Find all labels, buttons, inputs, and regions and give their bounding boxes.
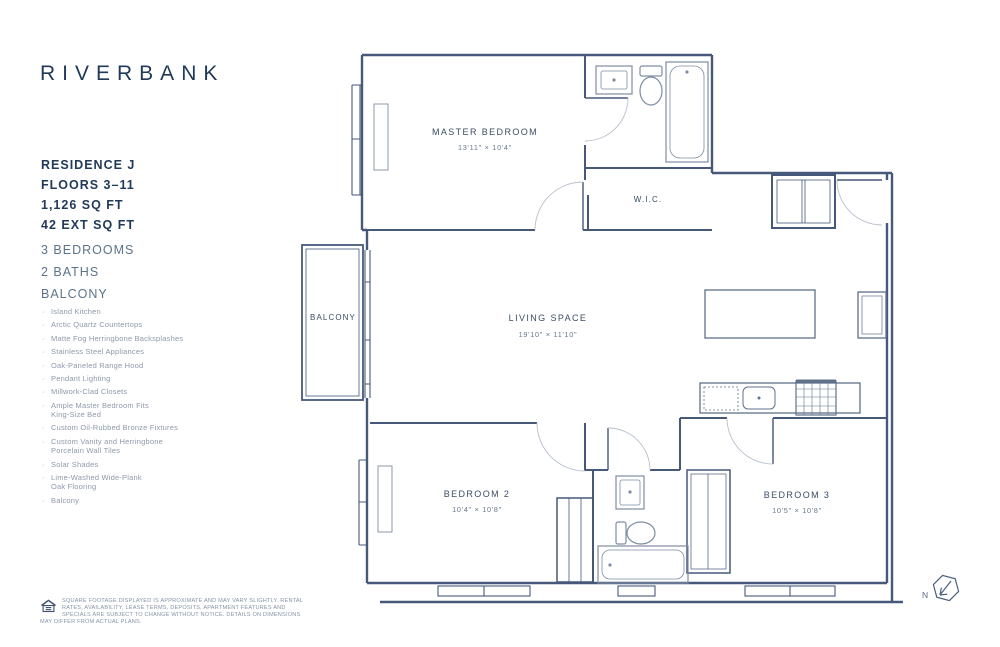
label-master-bedroom: MASTER BEDROOM bbox=[432, 127, 538, 137]
island bbox=[705, 290, 815, 338]
baths-count: 2 BATHS bbox=[41, 261, 134, 283]
furniture bbox=[374, 104, 392, 532]
bathtub bbox=[666, 62, 708, 162]
label-bedroom2: BEDROOM 2 bbox=[444, 489, 511, 499]
compass-arrow-icon bbox=[940, 581, 951, 595]
compass: N bbox=[918, 570, 970, 616]
range bbox=[796, 381, 836, 415]
feature-list: Island Kitchen Arctic Quartz Countertops… bbox=[41, 307, 221, 509]
balcony-slider bbox=[365, 250, 370, 398]
feature-item: Ample Master Bedroom Fits King-Size Bed bbox=[41, 401, 221, 420]
label-wic: W.I.C. bbox=[634, 195, 662, 204]
dresser bbox=[374, 104, 388, 170]
feature-item: Solar Shades bbox=[41, 460, 221, 469]
bedroom2-closet bbox=[557, 498, 593, 582]
bedrooms-count: 3 BEDROOMS bbox=[41, 239, 134, 261]
feature-item: Matte Fog Herringbone Backsplashes bbox=[41, 334, 221, 343]
feature-item: Lime-Washed Wide-Plank Oak Flooring bbox=[41, 473, 221, 492]
disclaimer-text: Square footage displayed is approximate … bbox=[40, 598, 303, 625]
dims-bedroom3: 10'5" × 10'8" bbox=[772, 506, 822, 515]
unit-specs: RESIDENCE J FLOORS 3–11 1,126 SQ FT 42 E… bbox=[41, 155, 135, 235]
kitchen bbox=[700, 290, 886, 415]
label-bedroom3: BEDROOM 3 bbox=[764, 490, 831, 500]
exterior-walls bbox=[362, 55, 903, 602]
toilet-bowl bbox=[640, 77, 662, 105]
toilet-tank bbox=[616, 522, 626, 544]
entry-closet bbox=[772, 175, 835, 228]
unit-summary: 3 BEDROOMS 2 BATHS BALCONY bbox=[41, 239, 134, 305]
compass-north-label: N bbox=[922, 590, 929, 600]
bedroom3-closet bbox=[687, 470, 730, 573]
floorplan-page: RIVERBANK RESIDENCE J FLOORS 3–11 1,126 … bbox=[0, 0, 1000, 647]
label-balcony: BALCONY bbox=[310, 313, 356, 322]
feature-item: Stainless Steel Appliances bbox=[41, 347, 221, 356]
dims-master-bedroom: 13'11" × 10'4" bbox=[458, 143, 512, 152]
floor-plan: MASTER BEDROOM 13'11" × 10'4" W.I.C. BAL… bbox=[290, 40, 915, 610]
feature-item: Oak-Paneled Range Hood bbox=[41, 361, 221, 370]
floors-range: FLOORS 3–11 bbox=[41, 175, 135, 195]
toilet-tank bbox=[640, 66, 662, 76]
door-leaves bbox=[583, 98, 882, 471]
toilet-bowl bbox=[627, 522, 655, 544]
dresser bbox=[378, 466, 392, 532]
dims-bedroom2: 10'4" × 10'8" bbox=[452, 505, 502, 514]
residence-name: RESIDENCE J bbox=[41, 155, 135, 175]
dishwasher bbox=[704, 387, 738, 410]
master-bath-fixtures bbox=[596, 62, 708, 162]
interior-area: 1,126 SQ FT bbox=[41, 195, 135, 215]
label-living-space: LIVING SPACE bbox=[509, 313, 588, 323]
feature-item: Pendant Lighting bbox=[41, 374, 221, 383]
feature-item: Balcony bbox=[41, 496, 221, 505]
feature-item: Island Kitchen bbox=[41, 307, 221, 316]
closets bbox=[557, 175, 835, 582]
balcony-flag: BALCONY bbox=[41, 283, 134, 305]
dims-living-space: 19'10" × 11'10" bbox=[519, 330, 578, 339]
feature-item: Custom Vanity and Herringbone Porcelain … bbox=[41, 437, 221, 456]
balcony-outline bbox=[302, 245, 363, 400]
feature-item: Custom Oil-Rubbed Bronze Fixtures bbox=[41, 423, 221, 432]
brand-logo: RIVERBANK bbox=[40, 62, 224, 86]
feature-item: Millwork-Clad Closets bbox=[41, 387, 221, 396]
exterior-area: 42 EXT SQ FT bbox=[41, 215, 135, 235]
feature-item: Arctic Quartz Countertops bbox=[41, 320, 221, 329]
equal-housing-icon bbox=[40, 599, 57, 613]
bath2-fixtures bbox=[598, 476, 688, 583]
disclaimer: Square footage displayed is approximate … bbox=[40, 598, 306, 626]
